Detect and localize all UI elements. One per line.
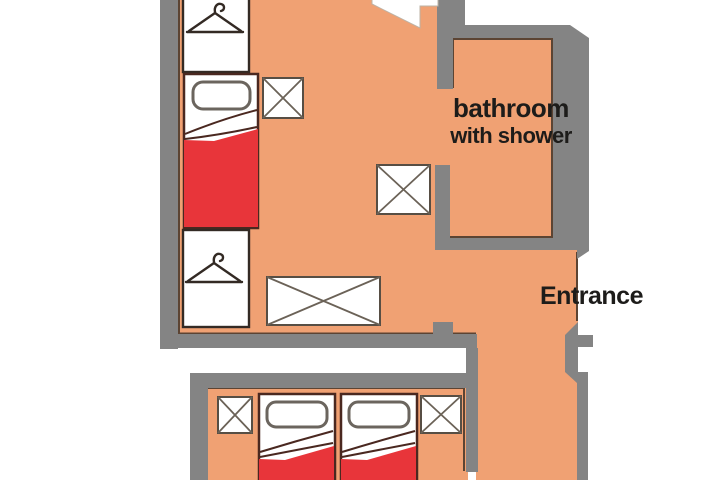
wall-lower-bedroom-top xyxy=(190,373,467,388)
wall-divider-lower xyxy=(435,165,450,250)
wall-lower-bedroom-left xyxy=(190,373,208,480)
bed-pillow xyxy=(193,82,250,109)
bathroom-label: bathroom with shower xyxy=(431,94,591,148)
bed-lower-right xyxy=(341,394,417,480)
bed-lower-left xyxy=(259,394,335,480)
bathroom-label-line2: with shower xyxy=(431,123,591,148)
floorplan-image: bathroom with shower Entrance xyxy=(0,0,720,480)
wall-divider-upper xyxy=(437,0,453,89)
bed-upper xyxy=(184,74,258,228)
table-square xyxy=(377,165,430,214)
table-large xyxy=(267,277,380,325)
bed-pillow xyxy=(349,402,409,427)
bed-blanket xyxy=(184,129,258,227)
nightstand-lower-left xyxy=(218,397,252,433)
bathroom-label-line1: bathroom xyxy=(431,94,591,123)
wall-bathroom-bottom xyxy=(435,238,577,250)
wardrobe-lower xyxy=(183,230,249,327)
wall-left xyxy=(160,0,178,349)
wall-main-room-bottom xyxy=(160,334,477,348)
bed-pillow xyxy=(267,402,327,427)
wall-door-post xyxy=(433,322,453,335)
wall-lower-bedroom-right xyxy=(466,348,478,472)
entrance-label: Entrance xyxy=(540,282,643,311)
nightstand-lower-right xyxy=(421,396,461,433)
nightstand-upper xyxy=(263,78,303,118)
wall-bathroom-top xyxy=(437,25,570,38)
wardrobe-upper xyxy=(183,0,249,72)
floorplan-drawing xyxy=(0,0,720,480)
